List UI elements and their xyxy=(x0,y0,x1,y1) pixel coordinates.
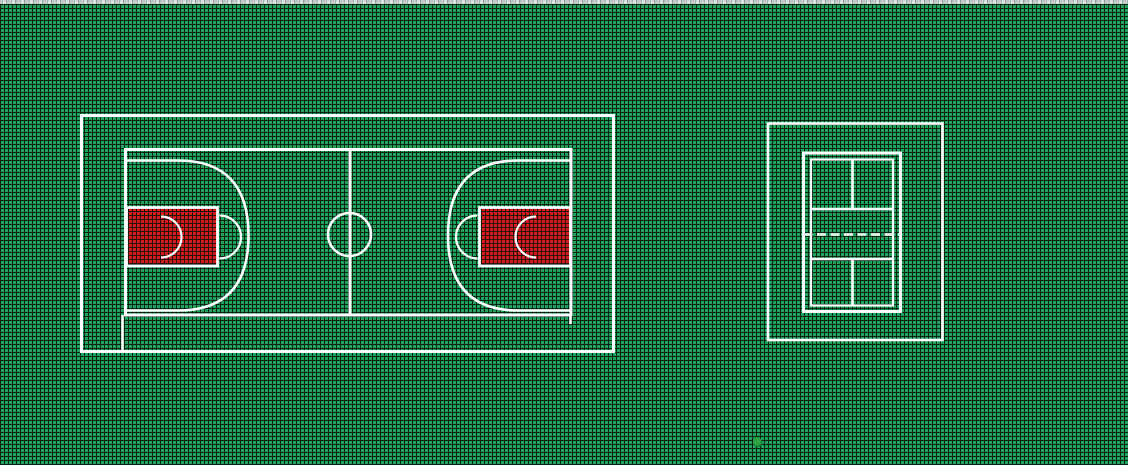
pickleball-apron-boundary xyxy=(768,124,943,341)
right-free-throw-arc xyxy=(456,216,478,259)
sport-surface-scene xyxy=(0,0,1128,465)
basketball-left-key-red-area xyxy=(128,209,216,264)
pickleball-court-boundary xyxy=(804,153,901,312)
left-free-throw-arc xyxy=(220,216,241,259)
basketball-right-key-red-area xyxy=(481,209,569,264)
green-smudge-mark xyxy=(753,437,762,447)
top-noise-band xyxy=(0,0,1128,4)
pickleball-inner-lines xyxy=(811,160,893,306)
pickleball-court xyxy=(768,124,943,341)
center-circle xyxy=(328,213,371,256)
